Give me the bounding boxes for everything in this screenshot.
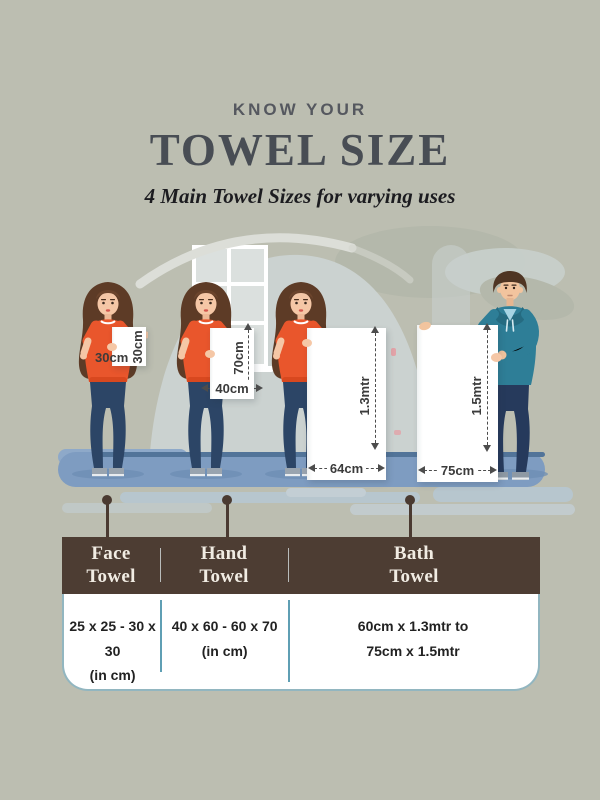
height-measure-line <box>375 333 376 443</box>
towel-group-hand-towel: 70cm40cm <box>210 328 254 399</box>
hand <box>491 353 502 362</box>
towel-group-bath-towel: 1.3mtr64cm <box>307 328 386 480</box>
towel-size-infographic: KNOW YOUR TOWEL SIZE 4 Main Towel Sizes … <box>0 0 600 800</box>
size-range-text: 60cm x 1.3mtr to <box>288 614 538 639</box>
woman-illustration <box>68 278 148 480</box>
towel-width-label: 64cm <box>327 462 366 476</box>
ground-shadow-pill <box>433 487 573 502</box>
hand <box>205 350 215 358</box>
table-header-cell-2: Bath Towel <box>288 537 540 594</box>
towel-height-label: 1.3mtr <box>358 373 372 419</box>
table-body-cell-0: 25 x 25 - 30 x 30(in cm) <box>64 594 161 689</box>
ground-shadow-pill <box>120 492 420 503</box>
table-header-cell-0: Face Towel <box>62 537 160 594</box>
body-divider <box>160 600 162 672</box>
ground-shadow-pill <box>62 503 212 513</box>
size-unit-text: (in cm) <box>161 639 288 664</box>
person-woman-1 <box>68 278 148 485</box>
header-divider <box>160 548 161 582</box>
hand <box>302 339 312 347</box>
table-body-cell-2: 60cm x 1.3mtr to75cm x 1.5mtr <box>288 594 538 689</box>
towel-group-face-towel: 30cm30cm <box>112 327 146 366</box>
size-range-text: 25 x 25 - 30 x 30 <box>64 614 161 663</box>
towel-height-label: 70cm <box>232 335 246 381</box>
body-divider <box>288 600 290 682</box>
towel-width-label: 75cm <box>438 464 477 478</box>
size-range-text: 40 x 60 - 60 x 70 <box>161 614 288 639</box>
size-unit-text: (in cm) <box>64 663 161 688</box>
table-header-cell-1: Hand Towel <box>160 537 288 594</box>
height-measure-line <box>248 330 249 385</box>
header-divider <box>288 548 289 582</box>
towel-height-label: 1.5mtr <box>470 373 484 419</box>
table-header-label: Hand Towel <box>191 543 257 588</box>
table-header-row: Face TowelHand TowelBath Towel <box>62 537 540 594</box>
height-measure-line <box>487 330 488 445</box>
connector-line <box>106 504 109 537</box>
ground-shadow-pill <box>286 488 366 497</box>
table-body-cell-1: 40 x 60 - 60 x 70(in cm) <box>161 594 288 689</box>
towel-width-label: 30cm <box>95 351 128 365</box>
size-unit-text: 75cm x 1.5mtr <box>288 639 538 664</box>
table-header-label: Bath Towel <box>381 543 447 588</box>
table-body-row: 25 x 25 - 30 x 30(in cm)40 x 60 - 60 x 7… <box>62 594 540 691</box>
towel-group-bath-towel-large: 1.5mtr75cm <box>417 325 498 482</box>
towel-height-label: 30cm <box>131 324 145 370</box>
table-header-label: Face Towel <box>78 543 144 588</box>
hand <box>107 343 117 351</box>
towel <box>417 325 498 482</box>
connector-line <box>226 504 229 537</box>
ground-shadow-pill <box>350 504 575 515</box>
size-table: Face TowelHand TowelBath Towel 25 x 25 -… <box>62 537 540 691</box>
connector-line <box>409 504 412 537</box>
towel-width-label: 40cm <box>212 382 251 396</box>
